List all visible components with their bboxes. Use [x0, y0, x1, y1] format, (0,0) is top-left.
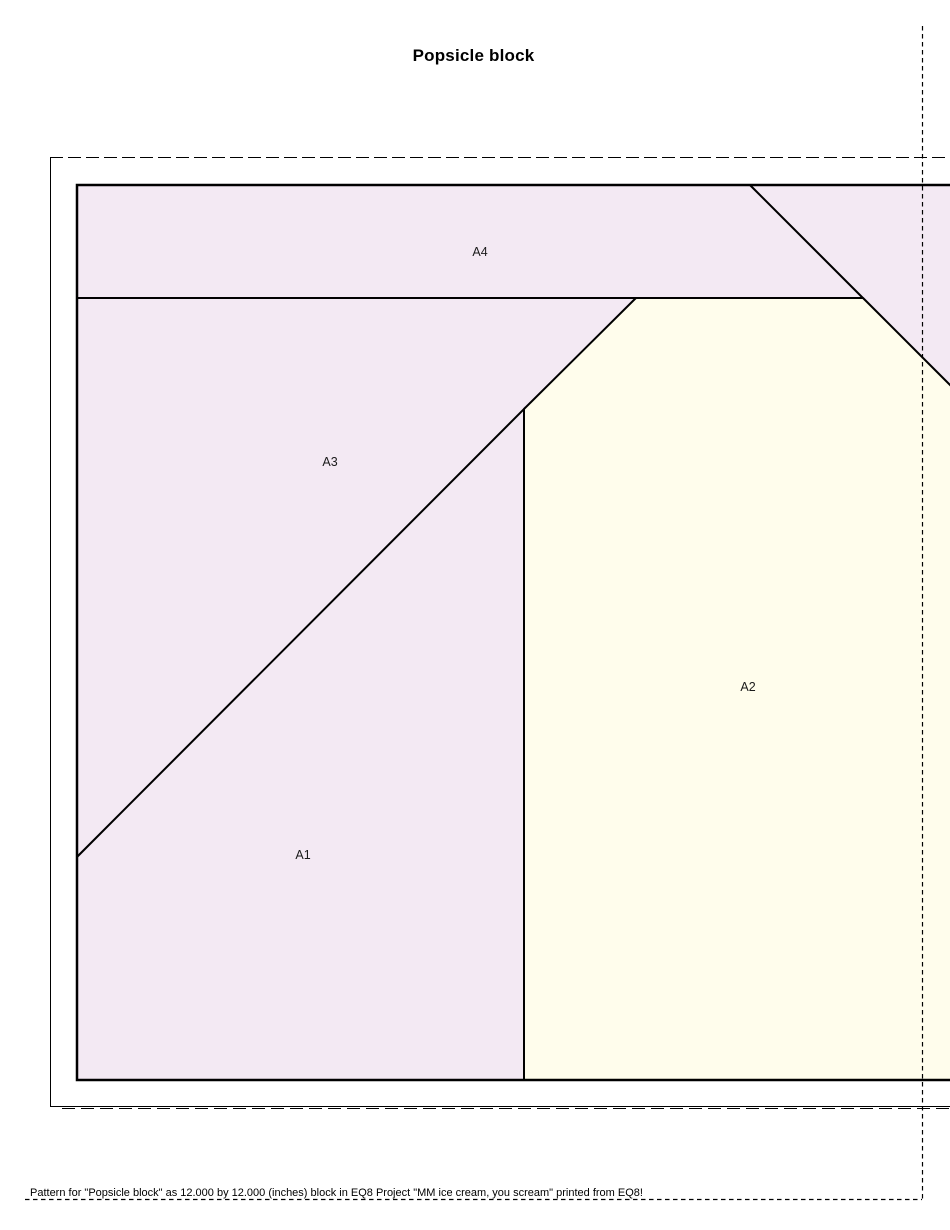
piece-A4 [77, 185, 863, 298]
piece-label-A4: A4 [472, 245, 487, 259]
piece-label-A1: A1 [295, 848, 310, 862]
footer-pattern-note: Pattern for "Popsicle block" as 12.000 b… [30, 1187, 643, 1199]
piece-label-A2: A2 [740, 680, 755, 694]
piece-A2 [524, 298, 950, 1080]
block-pattern-drawing [0, 0, 950, 1230]
piece-label-A3: A3 [322, 455, 337, 469]
